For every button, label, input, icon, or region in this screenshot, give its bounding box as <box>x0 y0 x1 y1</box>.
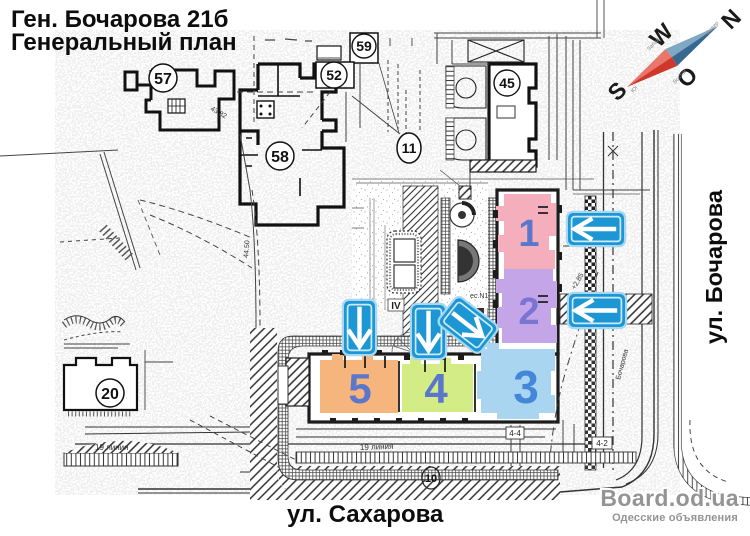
svg-text:57: 57 <box>154 71 172 88</box>
svg-text:2: 2 <box>518 291 539 333</box>
svg-text:58: 58 <box>271 149 289 166</box>
svg-text:4-4: 4-4 <box>509 429 521 438</box>
svg-text:IV: IV <box>391 301 401 312</box>
svg-text:ул. Сахарова: ул. Сахарова <box>287 501 444 528</box>
svg-text:3: 3 <box>513 361 539 413</box>
svg-text:52: 52 <box>326 67 342 83</box>
svg-text:4-2: 4-2 <box>596 439 608 448</box>
svg-text:59: 59 <box>356 38 372 54</box>
svg-text:19 линия: 19 линия <box>95 443 128 452</box>
svg-text:1: 1 <box>518 213 539 255</box>
svg-text:45: 45 <box>499 75 515 91</box>
svg-text:Одесские объявления: Одесские объявления <box>612 512 738 524</box>
svg-text:ес.N1: ес.N1 <box>470 293 488 300</box>
svg-text:19 линия: 19 линия <box>360 442 394 452</box>
svg-text:4: 4 <box>424 365 448 412</box>
svg-text:5: 5 <box>348 365 371 412</box>
svg-text:Board.od.ua: Board.od.ua <box>600 485 739 511</box>
svg-text:11: 11 <box>402 140 417 156</box>
svg-text:20: 20 <box>101 386 119 403</box>
svg-text:ул. Бочарова: ул. Бочарова <box>701 189 727 344</box>
svg-text:10: 10 <box>425 473 437 485</box>
